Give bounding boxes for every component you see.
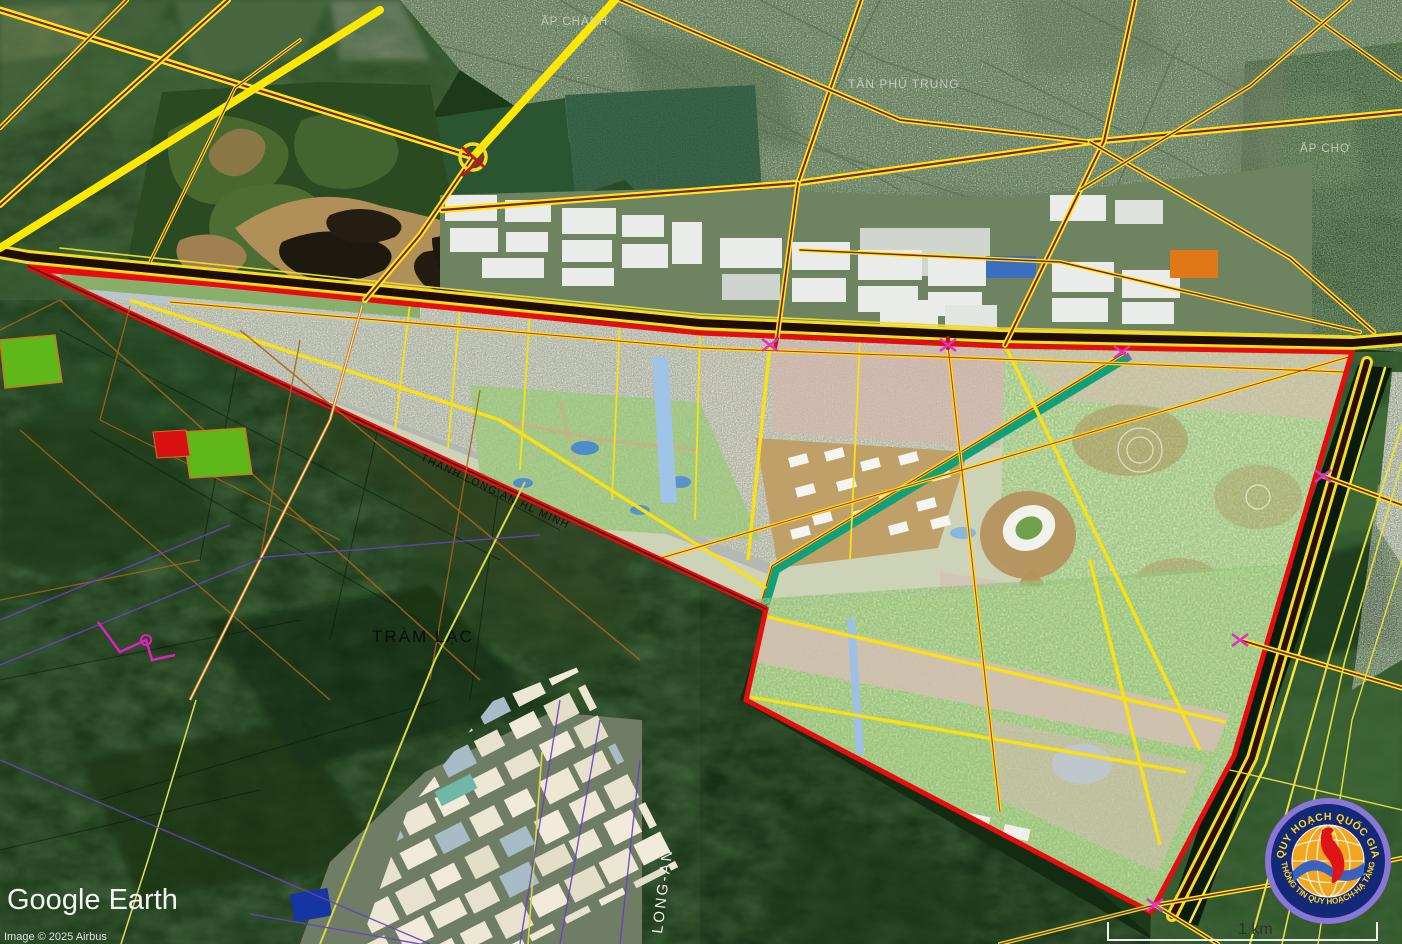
svg-text:ẤP CHỢ: ẤP CHỢ	[1300, 142, 1351, 155]
svg-text:ẤP CHÁNH: ẤP CHÁNH	[541, 15, 608, 28]
svg-text:TÂN PHÚ TRUNG: TÂN PHÚ TRUNG	[848, 76, 959, 91]
svg-text:TRÀM LẠC: TRÀM LẠC	[372, 627, 474, 646]
svg-text:1 km: 1 km	[1238, 921, 1273, 938]
svg-text:Google Earth: Google Earth	[7, 884, 178, 916]
svg-text:Image © 2025 Airbus: Image © 2025 Airbus	[4, 931, 107, 943]
